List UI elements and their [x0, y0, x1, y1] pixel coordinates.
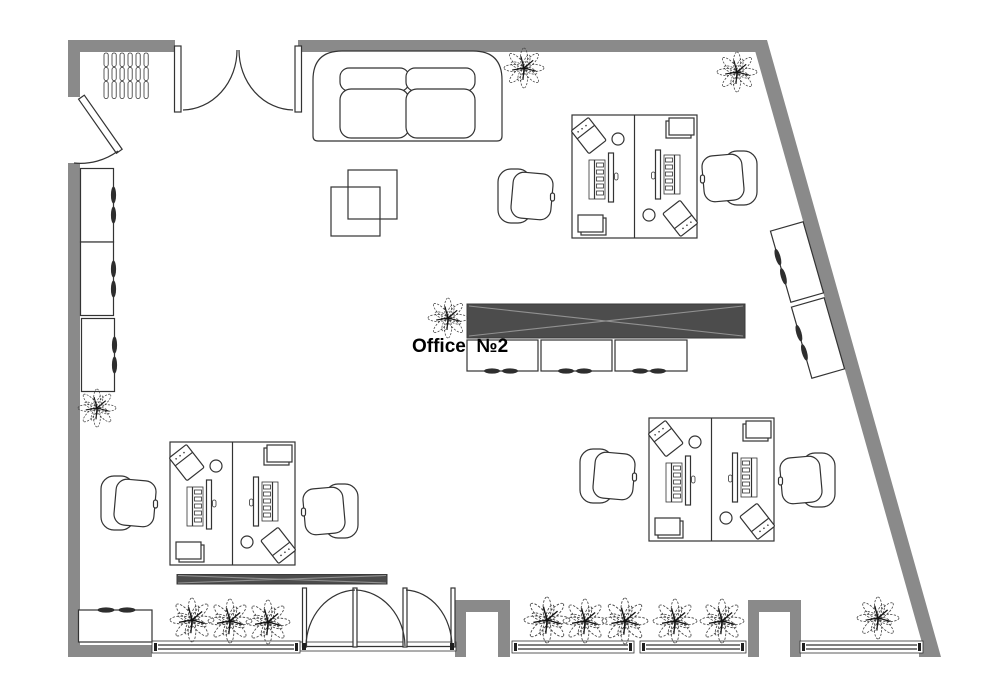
sofa — [313, 51, 502, 141]
left-wall-main-segment — [68, 163, 80, 657]
cabinet — [81, 169, 117, 243]
plant — [653, 599, 697, 643]
cabinet — [81, 242, 117, 316]
plant — [857, 597, 899, 639]
left-wall-top-segment — [68, 40, 80, 97]
plant — [246, 600, 290, 644]
bottom-doors — [300, 588, 456, 651]
floor-plan-canvas: Office №2 — [0, 0, 1000, 692]
workstation-cluster-bottom-left — [101, 442, 358, 565]
window-2 — [512, 641, 634, 653]
workstation-cluster-bottom-right — [580, 418, 835, 541]
dark-shelf-bar — [177, 575, 387, 585]
left-wall-cabinets — [81, 169, 118, 392]
top-wall-left-segment — [68, 40, 175, 52]
room-label: Office №2 — [412, 336, 508, 357]
floor-plan-drawing: Office №2 — [0, 0, 1000, 692]
plant — [208, 599, 252, 643]
window-3 — [640, 641, 746, 653]
coat-rack — [104, 53, 148, 99]
top-double-door — [175, 46, 302, 112]
cabinet — [541, 340, 612, 374]
plant — [602, 598, 648, 644]
workstation-cluster-top-right — [498, 115, 757, 238]
cabinet — [615, 340, 687, 374]
bottom-wall-pillar-2 — [748, 600, 801, 657]
plant — [700, 599, 744, 643]
coffee-tables — [331, 170, 397, 236]
plant — [428, 298, 468, 338]
plant — [78, 389, 116, 427]
cabinet — [82, 319, 118, 392]
bottom-wall-left-segment — [68, 645, 152, 657]
coffee-table-1 — [348, 170, 397, 219]
right-diagonal-wall — [752, 40, 941, 657]
window-1 — [152, 641, 300, 653]
coat-rack-slats — [104, 53, 148, 99]
plant — [717, 52, 757, 92]
center-counter — [467, 304, 745, 338]
plant — [170, 598, 214, 642]
windows — [152, 641, 923, 653]
top-wall-main-segment — [298, 40, 760, 52]
left-wall-door — [74, 95, 122, 163]
window-4 — [800, 641, 923, 653]
bottom-wall-pillar-1 — [455, 600, 510, 657]
coffee-table-2 — [331, 187, 380, 236]
plant — [504, 48, 544, 88]
bottom-left-cabinet — [79, 607, 153, 642]
